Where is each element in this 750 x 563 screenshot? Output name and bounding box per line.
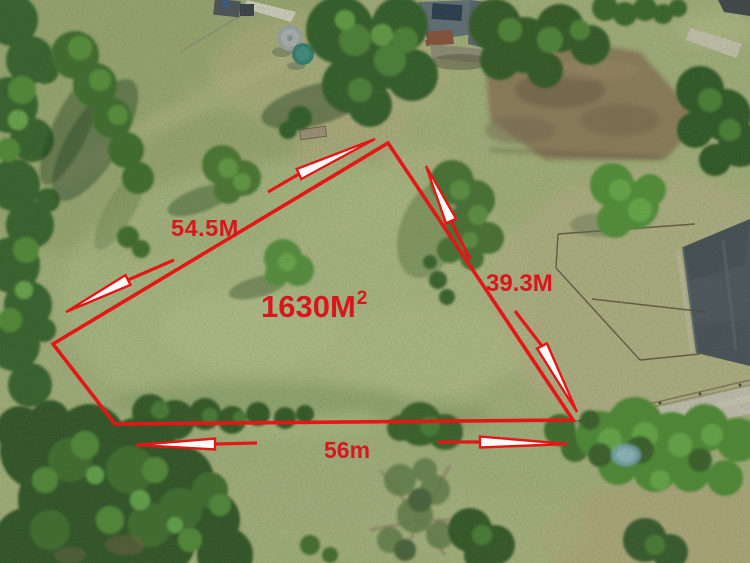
- photo-background: [0, 0, 750, 563]
- dimension-label-bottom: 56m: [324, 437, 370, 463]
- photo-grain: [0, 0, 750, 563]
- area-label-value: 1630M: [261, 289, 356, 324]
- aerial-photo: 54.5M 39.3M 1630M2 56m: [0, 0, 750, 563]
- dimension-label-top-left: 54.5M: [171, 215, 239, 241]
- area-label: 1630M2: [261, 288, 367, 324]
- dimension-label-right: 39.3M: [486, 270, 553, 297]
- area-label-superscript: 2: [357, 288, 368, 309]
- arrow-tail: [215, 443, 257, 444]
